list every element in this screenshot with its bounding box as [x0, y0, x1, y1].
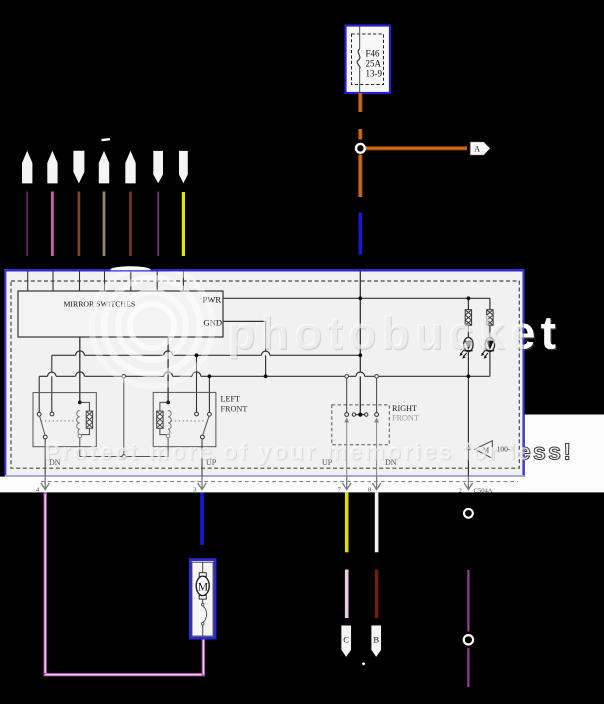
svg-text:F46: F46	[366, 49, 381, 59]
svg-text:25A: 25A	[366, 59, 382, 69]
svg-text:FRONT: FRONT	[221, 405, 248, 414]
svg-text:13-9: 13-9	[366, 69, 383, 79]
svg-text:A: A	[474, 144, 480, 153]
svg-text:Protect more of your memories: Protect more of your memories for less!	[44, 439, 571, 465]
svg-text:B: B	[373, 635, 379, 645]
svg-text:M: M	[198, 581, 208, 593]
svg-text:LEFT: LEFT	[221, 395, 241, 404]
svg-text:RIGHT: RIGHT	[392, 404, 417, 413]
svg-text:C: C	[343, 635, 349, 645]
svg-text:2: 2	[459, 488, 462, 495]
svg-text:FRONT: FRONT	[392, 414, 419, 423]
svg-text:C504A: C504A	[474, 488, 493, 495]
